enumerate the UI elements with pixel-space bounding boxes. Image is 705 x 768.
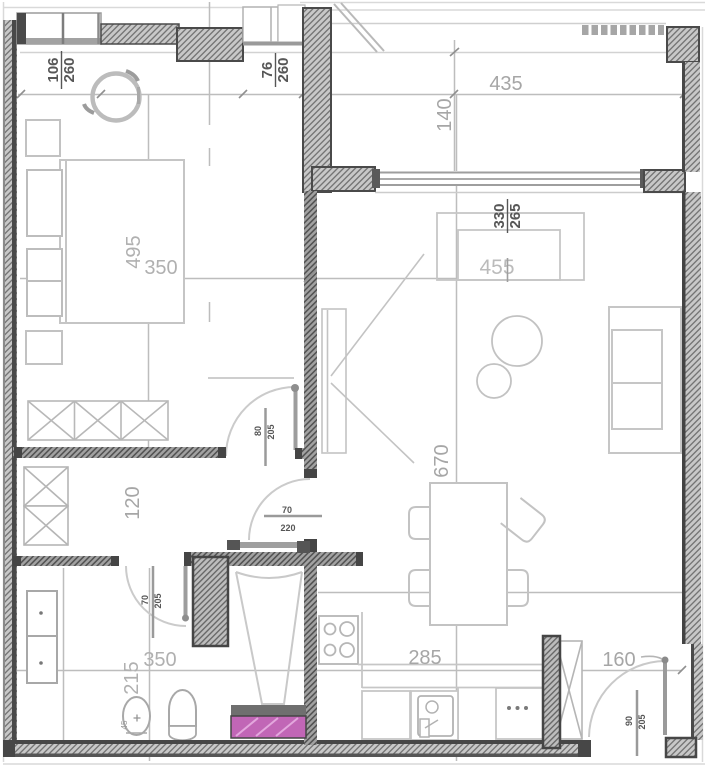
svg-text:205: 205 xyxy=(637,714,647,729)
svg-text:435: 435 xyxy=(489,73,522,95)
svg-text:45: 45 xyxy=(120,720,129,729)
svg-text:350: 350 xyxy=(143,649,176,671)
svg-text:350: 350 xyxy=(144,257,177,279)
svg-text:70: 70 xyxy=(282,505,292,515)
svg-text:120: 120 xyxy=(122,486,144,519)
svg-text:285: 285 xyxy=(408,647,441,669)
svg-text:330: 330 xyxy=(491,203,508,228)
svg-text:215: 215 xyxy=(121,661,143,694)
svg-text:260: 260 xyxy=(61,57,78,82)
svg-text:80: 80 xyxy=(253,426,263,436)
svg-text:455: 455 xyxy=(479,256,514,279)
svg-text:220: 220 xyxy=(280,523,295,533)
svg-text:265: 265 xyxy=(507,203,524,228)
svg-text:260: 260 xyxy=(275,57,292,82)
svg-text:90: 90 xyxy=(624,716,634,726)
svg-text:160: 160 xyxy=(602,649,635,671)
svg-text:106: 106 xyxy=(45,57,62,82)
svg-text:205: 205 xyxy=(266,424,276,439)
svg-text:205: 205 xyxy=(153,593,163,608)
svg-text:670: 670 xyxy=(431,444,453,477)
svg-text:495: 495 xyxy=(123,235,145,268)
svg-text:76: 76 xyxy=(259,62,276,79)
svg-text:140: 140 xyxy=(434,98,456,131)
svg-text:70: 70 xyxy=(140,595,150,605)
